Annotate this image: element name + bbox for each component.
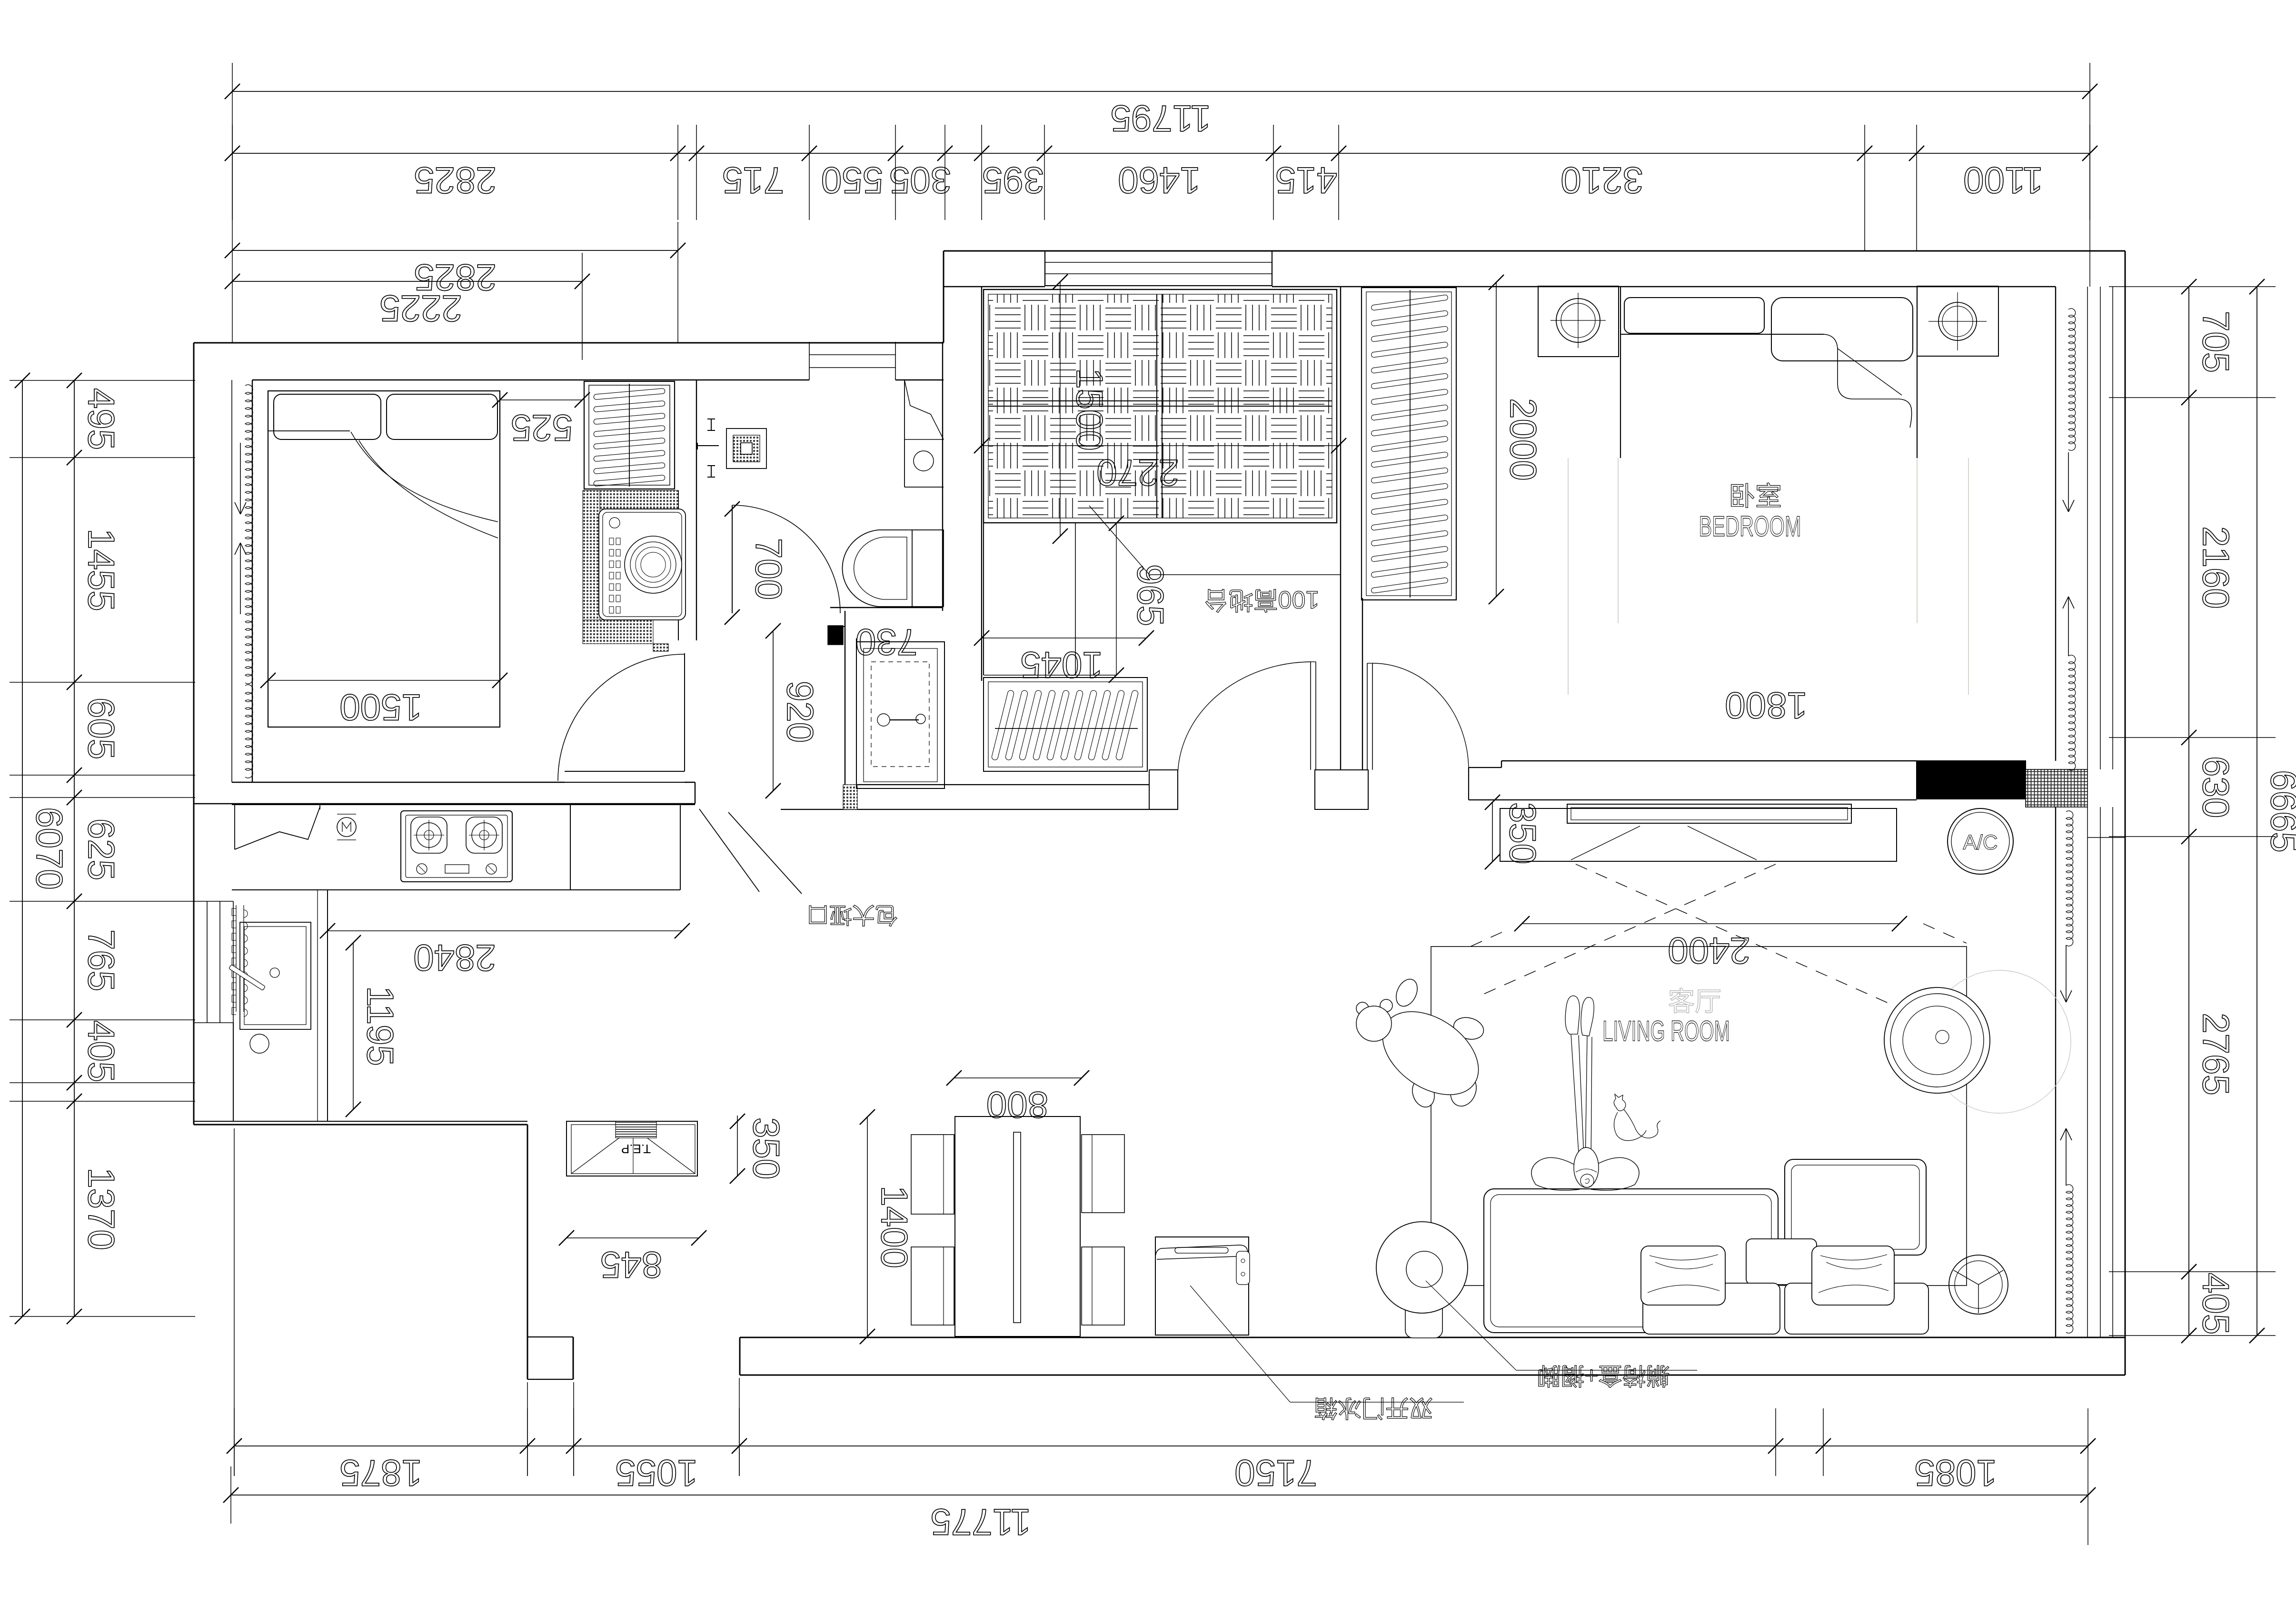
svg-text:765: 765 (80, 929, 122, 991)
svg-text:350: 350 (745, 1117, 787, 1179)
svg-text:1085: 1085 (1914, 1452, 1997, 1494)
svg-text:6665: 6665 (2263, 770, 2296, 853)
svg-text:躺椅盒+搁脚: 躺椅盒+搁脚 (1537, 1362, 1670, 1389)
svg-text:800: 800 (986, 1084, 1048, 1126)
svg-text:625: 625 (80, 818, 122, 880)
svg-text:BEDROOM: BEDROOM (1699, 510, 1801, 542)
svg-text:A/C: A/C (1963, 831, 1998, 854)
svg-text:350: 350 (1502, 802, 1544, 864)
svg-text:2270: 2270 (1096, 452, 1179, 494)
svg-text:2840: 2840 (413, 937, 496, 979)
svg-text:1800: 1800 (1725, 685, 1808, 727)
svg-text:1400: 1400 (874, 1186, 915, 1268)
svg-text:包大垭口: 包大垭口 (806, 902, 898, 927)
svg-text:客厅: 客厅 (1668, 987, 1721, 1017)
svg-text:双开门冰箱: 双开门冰箱 (1314, 1395, 1433, 1421)
svg-text:605: 605 (80, 698, 122, 759)
svg-text:920: 920 (779, 681, 821, 743)
svg-text:1045: 1045 (1020, 644, 1103, 686)
svg-text:405: 405 (2195, 1273, 2237, 1335)
svg-text:845: 845 (600, 1244, 662, 1286)
svg-text:11795: 11795 (1110, 98, 1211, 140)
svg-text:100高地台: 100高地台 (1204, 586, 1320, 613)
svg-text:1370: 1370 (80, 1167, 122, 1250)
svg-text:630: 630 (2195, 756, 2237, 818)
svg-text:700: 700 (748, 538, 790, 600)
svg-text:6070: 6070 (29, 807, 70, 890)
svg-text:550: 550 (821, 160, 883, 201)
svg-text:2160: 2160 (2195, 526, 2237, 609)
svg-text:2000: 2000 (1502, 398, 1544, 481)
svg-text:1055: 1055 (615, 1452, 698, 1494)
svg-text:1875: 1875 (339, 1452, 422, 1494)
svg-text:11775: 11775 (930, 1501, 1031, 1543)
svg-text:1500: 1500 (339, 687, 422, 728)
svg-text:395: 395 (982, 160, 1044, 201)
svg-text:3210: 3210 (1560, 160, 1643, 201)
svg-text:730: 730 (855, 621, 917, 663)
svg-text:2400: 2400 (1668, 930, 1750, 972)
svg-text:2825: 2825 (414, 160, 497, 201)
svg-text:1455: 1455 (80, 528, 122, 611)
svg-text:965: 965 (1130, 564, 1172, 626)
svg-text:2765: 2765 (2195, 1013, 2237, 1096)
svg-text:7150: 7150 (1234, 1452, 1317, 1494)
svg-text:525: 525 (511, 407, 573, 449)
svg-text:1100: 1100 (1963, 160, 2043, 201)
svg-text:1195: 1195 (359, 986, 401, 1066)
svg-text:715: 715 (722, 160, 784, 201)
svg-text:705: 705 (2195, 311, 2237, 373)
svg-text:305: 305 (889, 160, 951, 201)
svg-text:2225: 2225 (379, 288, 462, 329)
svg-text:LIVING ROOM: LIVING ROOM (1602, 1015, 1730, 1047)
svg-text:1460: 1460 (1118, 160, 1201, 201)
svg-text:卧室: 卧室 (1729, 481, 1782, 511)
svg-text:1500: 1500 (1069, 368, 1111, 451)
svg-text:495: 495 (80, 388, 122, 450)
svg-text:405: 405 (80, 1020, 122, 1082)
svg-text:415: 415 (1275, 160, 1337, 201)
svg-text:T.E.P: T.E.P (621, 1142, 651, 1156)
